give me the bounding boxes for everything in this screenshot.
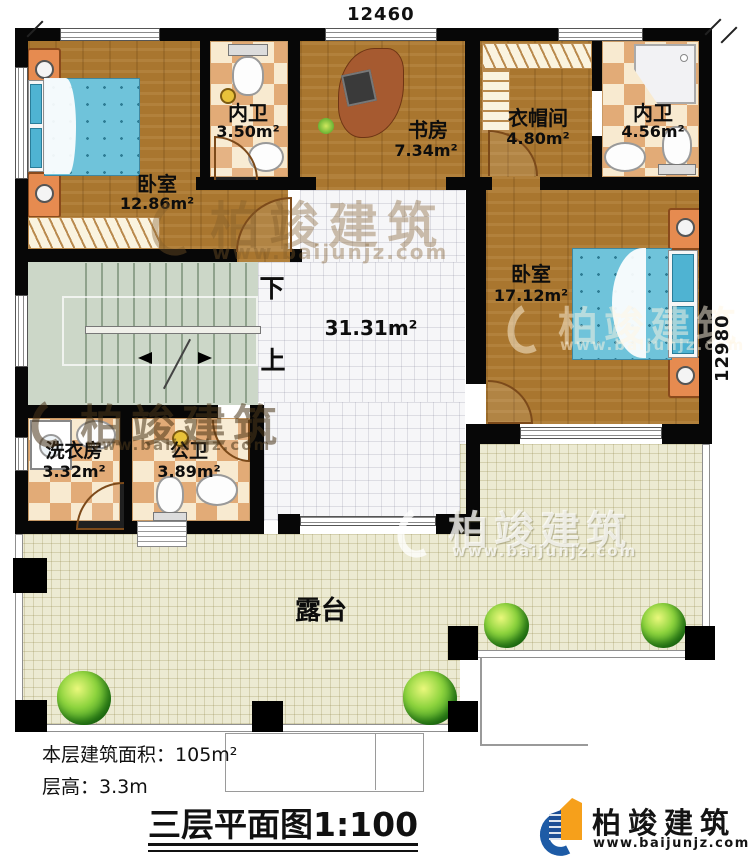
column <box>448 626 478 660</box>
computer-monitor-icon <box>341 69 377 107</box>
lamp-icon <box>35 184 54 203</box>
terrace-parapet <box>702 444 710 656</box>
column <box>685 626 715 660</box>
window <box>325 28 437 41</box>
plant-icon <box>318 118 334 134</box>
wall <box>278 514 300 534</box>
window <box>15 295 28 367</box>
bed1-headboard-panel <box>30 84 42 124</box>
lamp-icon <box>676 366 695 385</box>
stair-arrow-right <box>198 352 212 364</box>
room-area-study: 7.34m² <box>394 143 457 160</box>
wall <box>699 28 712 444</box>
watermark-url: www.baijunjz.com <box>86 436 271 454</box>
info-area-value: 105m² <box>175 744 237 766</box>
toilet-icon <box>232 56 264 96</box>
wardrobe <box>482 43 592 69</box>
room-label-bath1: 内卫 <box>228 103 268 124</box>
shower-drain <box>680 54 688 62</box>
wall <box>15 249 237 262</box>
room-area-wc: 3.89m² <box>157 464 220 481</box>
room-label-bath2: 内卫 <box>633 103 673 124</box>
lamp-icon <box>676 218 695 237</box>
closet-doorway-floor <box>486 177 540 190</box>
column <box>13 558 47 593</box>
room-label-study: 书房 <box>408 120 448 141</box>
column <box>15 700 47 732</box>
dimension-right: 12980 <box>712 314 733 382</box>
brand-logo-building-orange <box>560 798 582 840</box>
stair-up-label: 上 <box>260 348 285 374</box>
wall <box>465 41 480 177</box>
terrace-label: 露台 <box>295 598 347 625</box>
hall-area-label: 31.31m² <box>325 318 418 339</box>
stair-down-label: 下 <box>259 276 284 302</box>
wall <box>200 41 210 181</box>
window <box>15 67 28 179</box>
terrace-parapet <box>15 724 462 732</box>
wardrobe <box>482 69 510 133</box>
plan-title: 三层平面图1:100 <box>148 798 418 846</box>
info-area-label: 本层建筑面积： <box>42 744 175 766</box>
roof-outline <box>225 733 424 792</box>
tree-icon <box>641 603 686 648</box>
info-height-value: 3.3m <box>99 776 148 798</box>
wall <box>466 424 520 444</box>
room-label-closet: 衣帽间 <box>508 108 568 129</box>
plan-title-scale: 1:100 <box>313 805 418 844</box>
floor-plan-canvas: 卧室 12.86m² 内卫 3.50m² 书房 7.34m² 衣帽间 4.80m… <box>0 0 750 868</box>
lamp-icon <box>35 60 54 79</box>
room-label-bedroom2: 卧室 <box>511 264 551 285</box>
roof-outline-line <box>375 733 376 790</box>
wall <box>540 177 712 190</box>
wall <box>466 177 486 384</box>
toilet-icon <box>156 476 184 514</box>
wall <box>592 136 602 190</box>
toilet-base <box>153 512 187 521</box>
room-area-closet: 4.80m² <box>506 131 569 148</box>
column <box>252 701 283 732</box>
window <box>60 28 160 41</box>
hall-floor-lower <box>264 402 465 521</box>
terrace-parapet <box>460 650 710 658</box>
toilet-base <box>658 164 696 175</box>
dimension-tick <box>721 27 738 44</box>
watermark-url: www.baijunjz.com <box>452 542 637 560</box>
info-height-line: 层高：3.3m <box>42 772 148 799</box>
window <box>558 28 643 41</box>
bed1-headboard-panel <box>30 128 42 168</box>
brand-logo-building-blue <box>549 810 561 840</box>
window <box>15 437 28 471</box>
info-area-line: 本层建筑面积：105m² <box>42 740 237 767</box>
wall <box>592 41 602 91</box>
title-underline <box>148 850 418 852</box>
watermark-url: www.baijunjz.com <box>212 240 448 264</box>
room-area-bath2: 4.56m² <box>621 124 684 141</box>
dimension-tick <box>705 19 722 36</box>
wall <box>288 41 300 190</box>
dimension-top: 12460 <box>347 4 415 25</box>
steps <box>137 521 187 547</box>
sink-icon <box>604 142 646 172</box>
plan-title-text: 三层平面图 <box>148 805 313 844</box>
bed1-sheet <box>44 78 76 174</box>
roof-outline-line <box>480 744 588 746</box>
room-label-bedroom1: 卧室 <box>137 174 177 195</box>
wall <box>662 424 712 444</box>
tree-icon <box>57 671 111 725</box>
info-height-label: 层高： <box>42 776 99 798</box>
stair-handrail <box>85 326 261 334</box>
room-area-laundry: 3.32m² <box>42 464 105 481</box>
column <box>448 701 478 732</box>
roof-outline-line <box>480 658 482 746</box>
wardrobe <box>28 217 160 249</box>
title-underline <box>148 843 418 846</box>
room-area-bath1: 3.50m² <box>216 124 279 141</box>
sliding-window <box>520 427 662 439</box>
brand-url: www.baijunjz.com <box>593 836 750 851</box>
stair-arrow-left <box>138 352 152 364</box>
toilet-tank <box>228 44 268 56</box>
tree-icon <box>484 603 529 648</box>
